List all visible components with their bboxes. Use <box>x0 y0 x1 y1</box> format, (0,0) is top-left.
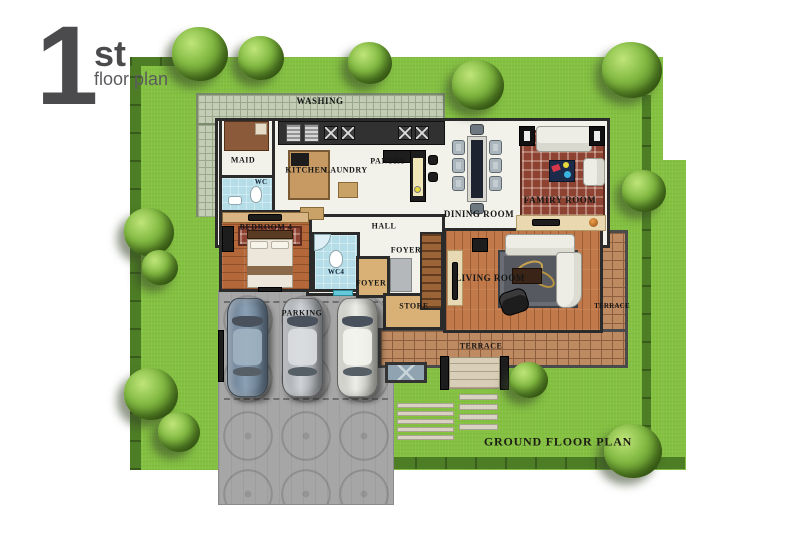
label-wc4: WC4 <box>328 268 344 276</box>
family-armchair <box>583 158 605 186</box>
washing-machine <box>304 124 319 142</box>
maid-wc-sink <box>228 196 242 205</box>
paver-stone <box>459 394 498 400</box>
label-family: FAMIRY ROOM <box>524 195 596 205</box>
water-feature <box>385 362 427 383</box>
family-table-item-blue <box>564 171 571 178</box>
maid-wc-toilet <box>250 186 262 203</box>
lawn-right-extension <box>663 160 686 470</box>
tree <box>124 208 174 256</box>
car-white <box>337 298 378 397</box>
label-terrace-bottom: TERRACE <box>460 342 503 351</box>
paver-stone <box>397 403 454 408</box>
bedroom4-bench <box>258 287 282 292</box>
laundry-basket <box>338 182 358 198</box>
pantry-sink-dot <box>414 186 421 193</box>
bed-pillow <box>271 241 289 249</box>
living-side-table <box>472 238 488 252</box>
label-dining: DINING ROOM <box>444 209 514 219</box>
car-roof <box>233 329 263 365</box>
label-kitchen: KITCHEN <box>285 166 326 175</box>
car-windshield <box>287 316 318 327</box>
label-foyer-entry: FOYER <box>356 279 387 288</box>
family-side-table <box>519 126 535 146</box>
tree <box>348 42 392 84</box>
paver-stone <box>397 411 454 416</box>
plant-pot <box>589 218 598 227</box>
page-title: 1 st floor plan <box>36 22 206 122</box>
foyer-mat <box>390 258 412 292</box>
label-parking: PARKING <box>282 309 323 318</box>
dining-chair <box>452 158 465 173</box>
bed-throw <box>247 266 293 275</box>
car-rear-window <box>288 367 316 376</box>
bedroom4-tv <box>248 214 282 221</box>
step-rail <box>500 356 509 390</box>
hedge-right-row <box>642 95 651 455</box>
title-number: 1 <box>36 22 94 109</box>
dining-chair <box>489 140 502 155</box>
paver-stone <box>397 435 454 440</box>
washing-machine <box>286 124 301 142</box>
paver-stone <box>459 414 498 420</box>
label-laundry: LAUNDRY <box>324 166 367 175</box>
family-sofa <box>536 126 592 152</box>
label-bedroom4: BEDROOM 4 <box>240 223 293 232</box>
tree <box>510 362 548 398</box>
tv-family <box>532 219 560 226</box>
floor-plan-illustration: WASHING MAID WC KITCHEN LAUNDRY PANTRY B… <box>0 0 800 533</box>
bedroom4-dresser <box>222 226 234 252</box>
family-table-item-yellow <box>563 162 569 168</box>
dining-chair <box>489 176 502 191</box>
sink-unit <box>324 126 338 140</box>
bed-pillow <box>250 241 268 249</box>
tree <box>142 250 178 285</box>
cooktop <box>291 153 309 166</box>
step-rail <box>440 356 449 390</box>
label-pantry: PANTRY <box>370 157 405 166</box>
label-hall: HALL <box>372 222 397 231</box>
foyer-entry-porch <box>356 256 390 298</box>
title-subtitle: floor plan <box>94 70 168 88</box>
dining-chair-end <box>470 124 484 135</box>
car-windshield <box>342 316 373 327</box>
sink-unit <box>398 126 412 140</box>
plan-caption: GROUND FLOOR PLAN <box>484 435 632 450</box>
paver-stone <box>459 424 498 430</box>
entry-steps <box>449 357 500 389</box>
car-rear-window <box>233 367 261 376</box>
tree <box>452 60 504 110</box>
dining-chair <box>452 176 465 191</box>
dining-chair <box>489 158 502 173</box>
living-sofa-right <box>556 252 582 308</box>
wc4-toilet <box>329 250 343 268</box>
car-roof <box>343 329 373 365</box>
staircase <box>420 232 443 310</box>
label-foyer-inner: FOYER <box>391 246 422 255</box>
label-store: STORE <box>399 302 428 311</box>
sink-unit <box>415 126 429 140</box>
bar-stool <box>428 172 438 182</box>
car-blue <box>227 298 268 397</box>
sink-unit <box>341 126 355 140</box>
label-living: LIVING ROOM <box>455 273 525 283</box>
dining-chair <box>452 140 465 155</box>
tree <box>604 424 662 478</box>
label-maid: MAID <box>231 156 255 165</box>
maid-pillow <box>255 123 267 135</box>
label-wc: WC <box>255 178 267 186</box>
parking-stall-line <box>224 398 388 400</box>
title-suffix: st <box>94 36 126 72</box>
entry-door-mat <box>333 290 353 296</box>
paver-stone <box>397 427 454 432</box>
tree <box>158 412 200 452</box>
paver-stone <box>459 404 498 410</box>
tree <box>622 170 666 212</box>
parking-side-wall <box>218 330 224 382</box>
car-windshield <box>232 316 263 327</box>
label-washing: WASHING <box>296 96 343 106</box>
tree <box>238 36 284 80</box>
bar-stool <box>428 155 438 165</box>
label-terrace-side: TERRACE <box>594 302 630 310</box>
car-roof <box>288 329 318 365</box>
tree <box>602 42 662 98</box>
dining-runner <box>471 140 483 198</box>
family-side-table <box>589 126 605 146</box>
car-rear-window <box>343 367 371 376</box>
paver-stone <box>397 419 454 424</box>
